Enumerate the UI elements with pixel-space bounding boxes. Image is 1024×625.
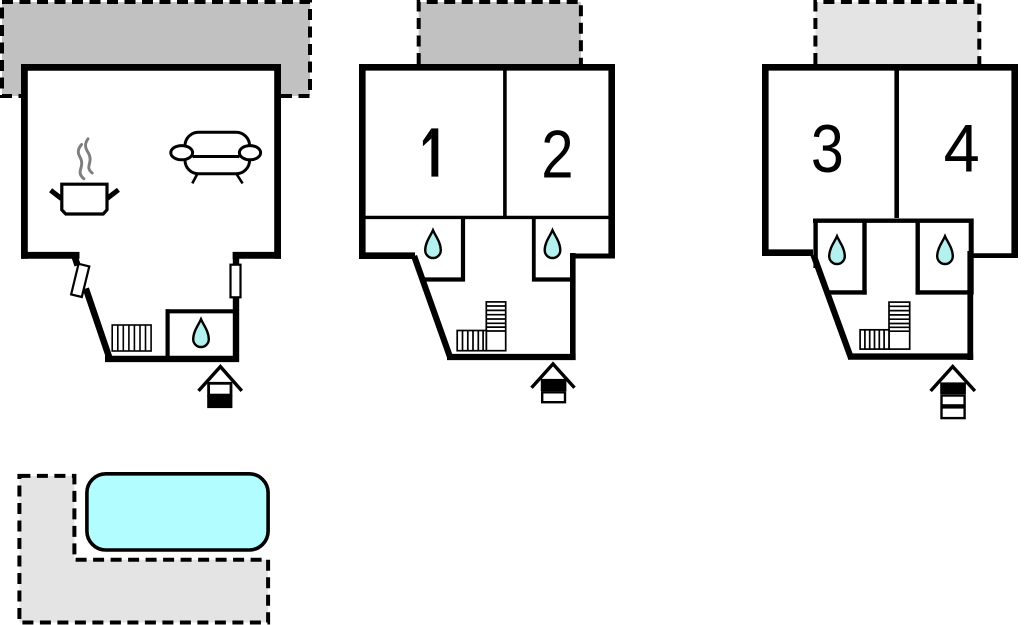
svg-text:2: 2 [541,117,573,192]
svg-text:3: 3 [811,110,844,187]
svg-text:4: 4 [944,111,980,187]
